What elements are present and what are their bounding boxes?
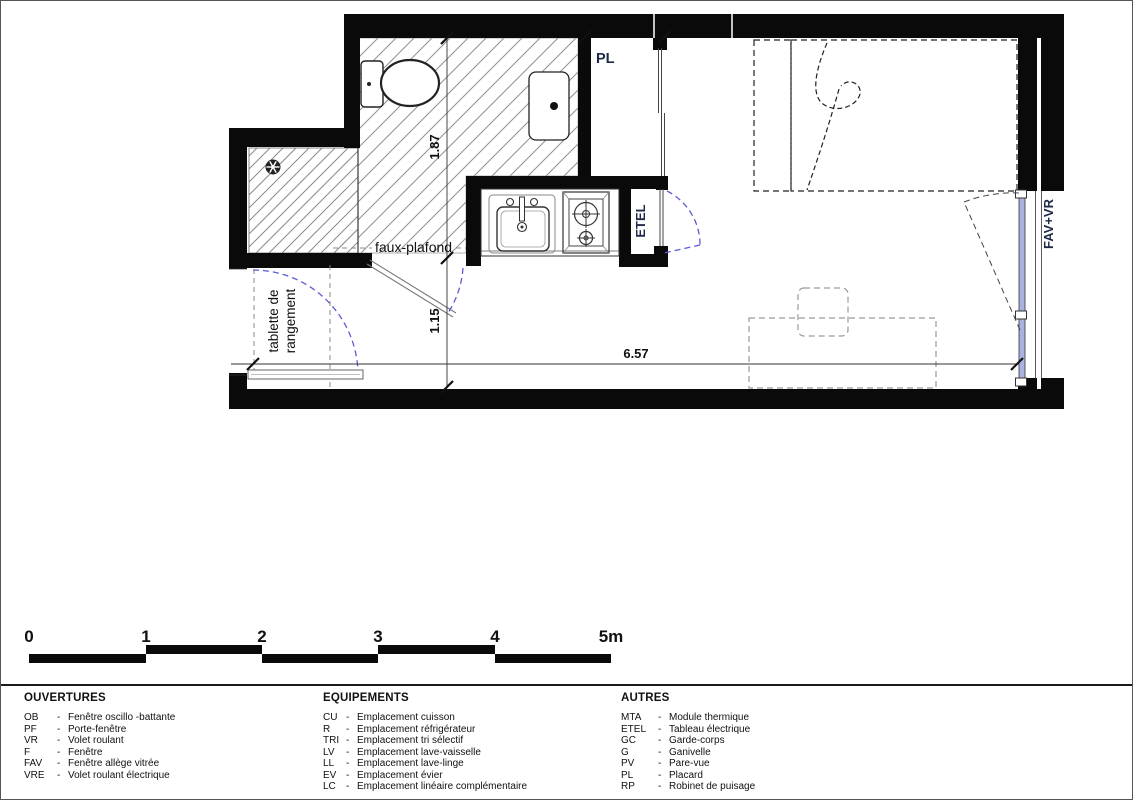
tablette-label-line1: tablette de — [266, 289, 281, 352]
legend-title-ouvertures: OUVERTURES — [24, 692, 175, 704]
legend-item: PF-Porte-fenêtre — [24, 724, 175, 736]
bed — [754, 40, 1017, 191]
placard-label: PL — [596, 51, 615, 67]
entry-frame-lines — [229, 269, 247, 375]
legend-item: TRI-Emplacement tri sélectif — [323, 735, 527, 747]
storage-shelf — [248, 370, 363, 379]
dimension-entry-depth: 1.15 — [427, 308, 442, 333]
legend-item: VR-Volet roulant — [24, 735, 175, 747]
legend-item: OB-Fenêtre oscillo -battante — [24, 712, 175, 724]
legend-item: PV-Pare-vue — [621, 758, 755, 770]
scale-tick-4: 4 — [490, 627, 500, 646]
etel-door-swing — [664, 191, 700, 253]
toilet — [361, 60, 439, 107]
legend-title-autres: AUTRES — [621, 692, 755, 704]
window-door-swing — [964, 193, 1020, 330]
tablette-label-line2: rangement — [283, 288, 298, 353]
legend-item: FAV-Fenêtre allège vitrée — [24, 758, 175, 770]
legend-item: GC-Garde-corps — [621, 735, 755, 747]
legend-column-equipements: EQUIPEMENTS CU-Emplacement cuisson R-Emp… — [323, 692, 527, 793]
legend-column-autres: AUTRES MTA-Module thermique ETEL-Tableau… — [621, 692, 755, 793]
window-fav-vr — [1016, 190, 1042, 386]
dimension-room-width: 6.57 — [623, 346, 648, 361]
bathroom-door — [367, 260, 463, 317]
legend-item: F-Fenêtre — [24, 747, 175, 759]
scale-bar: 0 1 2 3 4 5m — [24, 627, 623, 663]
legend-title-equipements: EQUIPEMENTS — [323, 692, 527, 704]
legend-item: ETEL-Tableau électrique — [621, 724, 755, 736]
scale-tick-2: 2 — [257, 627, 266, 646]
shower-hatch-area — [249, 148, 358, 253]
floor-plan-drawing: PL ETEL FAV+VR faux-plafond tablette de … — [1, 1, 1133, 685]
scale-tick-1: 1 — [141, 627, 150, 646]
legend-item: LV-Emplacement lave-vaisselle — [323, 747, 527, 759]
legend-item: RP-Robinet de puisage — [621, 781, 755, 793]
legend-item: MTA-Module thermique — [621, 712, 755, 724]
shower-drain-icon — [266, 160, 281, 175]
etel-label: ETEL — [633, 204, 648, 237]
legend: OUVERTURES OB-Fenêtre oscillo -battante … — [1, 684, 1133, 800]
legend-item: PL-Placard — [621, 770, 755, 782]
scale-tick-3: 3 — [373, 627, 382, 646]
legend-column-ouvertures: OUVERTURES OB-Fenêtre oscillo -battante … — [24, 692, 175, 781]
chair — [798, 288, 848, 336]
placard-doors — [659, 48, 665, 176]
scale-tick-5: 5m — [599, 627, 624, 646]
legend-item: CU-Emplacement cuisson — [323, 712, 527, 724]
legend-item: LC-Emplacement linéaire complémentaire — [323, 781, 527, 793]
legend-item: R-Emplacement réfrigérateur — [323, 724, 527, 736]
scale-tick-0: 0 — [24, 627, 33, 646]
legend-item: G-Ganivelle — [621, 747, 755, 759]
floor-plan-sheet: PL ETEL FAV+VR faux-plafond tablette de … — [0, 0, 1133, 800]
faux-plafond-label: faux-plafond — [375, 239, 452, 255]
legend-item: EV-Emplacement évier — [323, 770, 527, 782]
fav-vr-label: FAV+VR — [1041, 198, 1056, 249]
etel-door — [660, 189, 663, 246]
legend-item: LL-Emplacement lave-linge — [323, 758, 527, 770]
desk — [749, 318, 936, 388]
washbasin — [529, 72, 569, 140]
legend-item: VRE-Volet roulant électrique — [24, 770, 175, 782]
dimension-bathroom-depth: 1.87 — [427, 134, 442, 159]
